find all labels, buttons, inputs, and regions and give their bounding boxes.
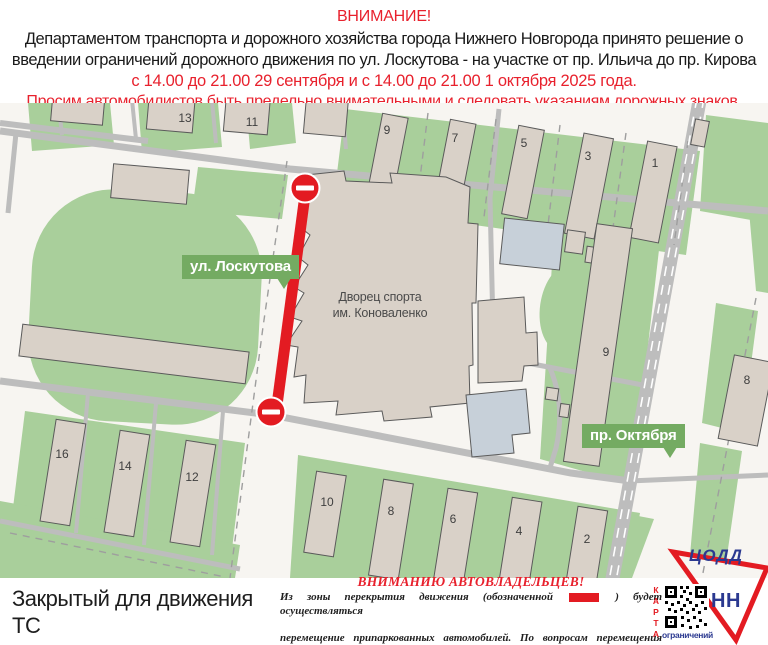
- logo-org-text: ЦОДД: [689, 546, 759, 566]
- building-number: 11: [246, 115, 258, 129]
- building-number: 5: [521, 136, 528, 150]
- label-pointer: [277, 278, 291, 289]
- building-number: 3: [585, 149, 592, 163]
- sports-palace-line1: Дворец спорта: [296, 289, 464, 305]
- logo-karta-text: КАРТА: [651, 585, 661, 640]
- city-map: 13 11 9 7 5 3 1 9 8 16 14 12 10 8 6 4 2 …: [0, 103, 768, 578]
- logo-city-text: НН: [711, 590, 741, 613]
- building-number: 9: [384, 123, 391, 137]
- legend-line2: участок улицы -: [12, 639, 163, 645]
- building-number: 13: [178, 111, 191, 125]
- building-number: 4: [516, 524, 523, 538]
- header-dates: с 14.00 до 21.00 29 сентября и с 14.00 д…: [0, 72, 768, 91]
- red-zone-swatch: [569, 593, 599, 602]
- building-number: 16: [55, 447, 68, 461]
- notice-title: ВНИМАНИЮ АВТОВЛАДЕЛЬЦЕВ!: [280, 574, 662, 590]
- sports-palace-line2: им. Коноваленко: [296, 305, 464, 321]
- building-number: 2: [584, 532, 591, 546]
- street-label-loskutova: ул. Лоскутова: [182, 255, 299, 279]
- street-label-loskutova-text: ул. Лоскутова: [190, 258, 291, 275]
- building-number: 1: [652, 156, 659, 170]
- street-label-oktyabrya: пр. Октября: [582, 424, 685, 448]
- closure-legend: Закрытый для движения ТС участок улицы -: [12, 585, 282, 645]
- qr-code: [663, 584, 709, 630]
- legend-line1: Закрытый для движения ТС: [12, 585, 282, 639]
- legend-line2-row: участок улицы -: [12, 639, 282, 645]
- notice-line2: перемещение припаркованных автомобилей. …: [280, 632, 662, 645]
- header-title: ВНИМАНИЕ!: [0, 8, 768, 26]
- notice-line1-before: Из зоны перекрытия движения (обозначенно…: [280, 591, 553, 603]
- header: ВНИМАНИЕ! Департаментом транспорта и дор…: [0, 0, 768, 111]
- building-number: 7: [452, 131, 459, 145]
- codd-logo: ЦОДД НН КАРТА ограничений: [645, 542, 768, 645]
- building-number: 8: [388, 504, 395, 518]
- building-number: 8: [744, 373, 751, 387]
- sports-palace-label: Дворец спорта им. Коноваленко: [296, 289, 464, 321]
- no-entry-sign-bottom: [257, 398, 286, 427]
- notice-line1: Из зоны перекрытия движения (обозначенно…: [280, 591, 662, 632]
- building-number: 10: [320, 495, 333, 509]
- building-number: 14: [118, 459, 131, 473]
- building-number: 6: [450, 512, 457, 526]
- owners-notice: ВНИМАНИЮ АВТОВЛАДЕЛЬЦЕВ! Из зоны перекры…: [280, 574, 662, 645]
- traffic-announcement-poster: ВНИМАНИЕ! Департаментом транспорта и дор…: [0, 0, 768, 645]
- no-entry-sign-top: [291, 174, 320, 203]
- label-pointer: [663, 447, 677, 458]
- street-label-oktyabrya-text: пр. Октября: [590, 427, 677, 444]
- map-graphic: [0, 103, 768, 578]
- header-body: Департаментом транспорта и дорожного хоз…: [6, 29, 762, 71]
- building-number: 9: [603, 345, 610, 359]
- logo-ogranicheniy-text: ограничений: [662, 630, 713, 640]
- building-number: 12: [185, 470, 198, 484]
